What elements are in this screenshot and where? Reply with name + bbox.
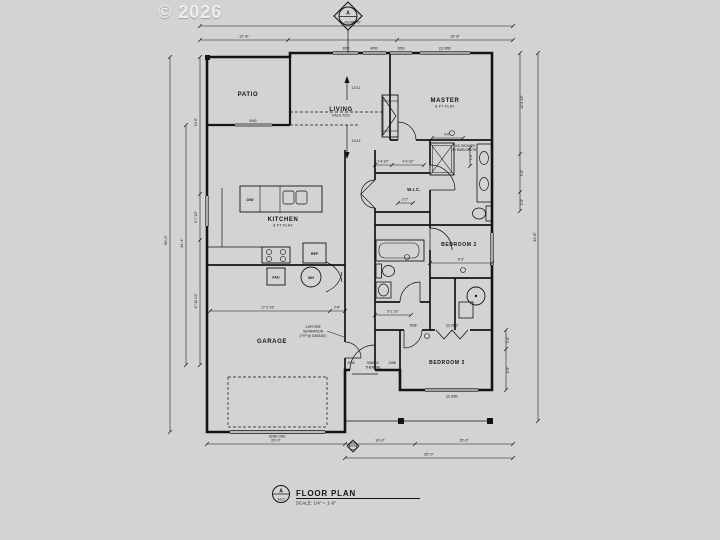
svg-text:3068 SC: 3068 SC bbox=[367, 361, 380, 365]
entry-door-note: 3068 SC THERMAL bbox=[365, 361, 380, 370]
dim-wic-b: 4'-6 1/2" bbox=[402, 160, 414, 164]
room-label-bedroom3: BEDROOM 3 bbox=[429, 360, 465, 366]
window-label: 3050 bbox=[342, 47, 349, 51]
bath2-sink bbox=[376, 282, 391, 298]
master-vanity bbox=[477, 144, 492, 202]
keynote-bubble bbox=[461, 268, 466, 273]
dim-bottom-a: 10'-0" bbox=[375, 439, 385, 443]
porch-slab-line bbox=[345, 374, 492, 421]
bath2-tub bbox=[376, 240, 424, 261]
dim-right-b: 5'-6" bbox=[520, 170, 524, 176]
master-window-label: (2) 3050 bbox=[439, 47, 451, 51]
shower-note: TILE SHOWER W/ BARN DOOR bbox=[452, 144, 477, 152]
dim-right-d: 2'-8" bbox=[506, 337, 510, 343]
bifold-closet-doors bbox=[436, 330, 468, 339]
keynote-bubble bbox=[425, 334, 430, 339]
bath2-toilet bbox=[376, 264, 395, 278]
svg-text:W/ BARN DOOR: W/ BARN DOOR bbox=[452, 148, 477, 152]
garage-door-opening bbox=[230, 431, 325, 434]
dishwasher-label: D/W bbox=[247, 198, 255, 202]
dim-mbath-b: 2'-6" bbox=[469, 154, 473, 160]
dim-bed2-a: 9'-2" bbox=[458, 258, 464, 262]
dim-right-e: 8'-8" bbox=[506, 367, 510, 373]
dim-right-c: 2'-8" bbox=[520, 199, 524, 205]
dim-wic-a: 2'-4 1/2" bbox=[377, 160, 389, 164]
dim-bottom-b: 15'-0" bbox=[459, 439, 469, 443]
slope-lower-label: 3.5:12 bbox=[352, 139, 361, 143]
dimension-lines bbox=[170, 26, 538, 458]
master-toilet bbox=[473, 206, 493, 221]
dim-bottom-overall: 25'-0" bbox=[424, 453, 434, 457]
pantry-corner-doors bbox=[326, 262, 342, 292]
roof-slope-arrows: 2.5:12 3.5:12 bbox=[344, 76, 360, 159]
porch-post bbox=[398, 418, 404, 424]
water-heater-label: WH bbox=[308, 276, 314, 280]
water-heater: WH bbox=[301, 267, 321, 287]
dim-left-a: 19'-8" bbox=[194, 118, 198, 126]
kitchen-island: D/W bbox=[240, 186, 322, 212]
floor-plan-drawing: D/W REF WH FAU bbox=[0, 0, 720, 540]
laundry-shelf bbox=[459, 302, 473, 318]
drawing-scale: SCALE: 1/4" = 1'-0" bbox=[296, 501, 337, 506]
window-label: 2650 bbox=[397, 47, 404, 51]
dim-mbath-a: 4'-6" bbox=[444, 133, 450, 137]
entry-side-label: 2068 bbox=[388, 361, 395, 365]
island-sink-bowl bbox=[283, 191, 294, 204]
refrigerator-label: REF bbox=[311, 252, 319, 256]
dim-left-c: 17'-10 1/2" bbox=[194, 293, 198, 308]
room-sub-living: VAULTED bbox=[332, 114, 350, 118]
window-label: 4050 bbox=[370, 47, 377, 51]
title-marker-letter: A bbox=[279, 489, 283, 495]
title-marker-sheet: A3.0 bbox=[278, 498, 285, 502]
dashed-lines bbox=[228, 112, 383, 427]
dim-bottom-garage: 20'-0" bbox=[271, 439, 281, 443]
keynote-bubble bbox=[405, 255, 410, 260]
svg-text:1-HR FIRE: 1-HR FIRE bbox=[305, 325, 321, 329]
fire-separation-note: 1-HR FIRE SEPARATION (TYP @ GARAGE) bbox=[300, 325, 344, 338]
room-label-patio: PATIO bbox=[238, 92, 258, 98]
room-label-wic: W.I.C. bbox=[407, 187, 421, 192]
dim-garage-width: 17'-2 1/2" bbox=[261, 306, 274, 310]
section-marker-letter: A bbox=[346, 11, 350, 17]
bed3-window-label: (2) 3050 bbox=[446, 395, 458, 399]
section-marker-bottom bbox=[347, 440, 359, 452]
range bbox=[262, 247, 290, 263]
svg-text:SEPARATION: SEPARATION bbox=[303, 330, 324, 334]
patio-slider-label: 9060 bbox=[249, 119, 256, 123]
room-sub-kitchen: 8 FT FLAT bbox=[273, 224, 293, 228]
room-label-living: LIVING bbox=[329, 107, 353, 113]
note-leader bbox=[327, 331, 344, 337]
dim-wic-c: 2'-2" bbox=[402, 198, 408, 202]
patio-walls bbox=[207, 57, 290, 125]
dim-top-right: 16'-8" bbox=[450, 35, 460, 39]
room-label-kitchen: KITCHEN bbox=[268, 217, 299, 223]
room-sub-master: 8 FT FLAT bbox=[435, 105, 455, 109]
kitchen-counter-line bbox=[207, 188, 262, 247]
island-sink-bowl bbox=[296, 191, 307, 204]
dim-left-mid: 34'-4" bbox=[180, 238, 184, 248]
drawing-title: FLOOR PLAN bbox=[296, 489, 356, 498]
laundry-dryer bbox=[459, 287, 485, 318]
room-label-bedroom2: BEDROOM 2 bbox=[441, 242, 477, 248]
svg-text:(TYP @ GARAGE): (TYP @ GARAGE) bbox=[300, 334, 327, 338]
bed3-closet-label: (2) 2668 bbox=[446, 324, 458, 328]
dim-right-overall: 34'-8" bbox=[533, 232, 537, 242]
title-block: A A3.0 FLOOR PLAN SCALE: 1/4" = 1'-0" bbox=[273, 486, 421, 506]
dim-garage-width2: 2'-8" bbox=[334, 306, 340, 310]
room-label-garage: GARAGE bbox=[257, 339, 287, 345]
section-marker-top: A A3.0 bbox=[334, 2, 362, 53]
dim-top-left: 12'-8" bbox=[239, 35, 249, 39]
section-marker-sheet: A3.0 bbox=[345, 21, 352, 25]
dim-right-a: 14'-6 1/2" bbox=[520, 95, 524, 108]
porch-post bbox=[487, 418, 493, 424]
furnace-label: FAU bbox=[272, 276, 280, 280]
master-shower bbox=[430, 143, 454, 175]
bed3-door-label: 2668 bbox=[409, 324, 416, 328]
floor-plan-sheet: © 2026 D/W bbox=[0, 0, 720, 540]
dim-left-b: 6'-7 1/2" bbox=[194, 211, 198, 223]
keynote-bubble bbox=[450, 131, 455, 136]
furnace: FAU bbox=[267, 268, 285, 285]
refrigerator: REF bbox=[303, 243, 326, 263]
entry-side-label: 2068 bbox=[347, 361, 354, 365]
room-label-master: MASTER bbox=[431, 98, 460, 104]
svg-text:THERMAL: THERMAL bbox=[365, 366, 380, 370]
dim-bath2-a: 5'-1 1/2" bbox=[387, 310, 399, 314]
dim-left-overall: 50'-0" bbox=[164, 235, 168, 245]
wall-corner-post bbox=[205, 55, 210, 60]
slope-upper-label: 2.5:12 bbox=[352, 86, 361, 90]
